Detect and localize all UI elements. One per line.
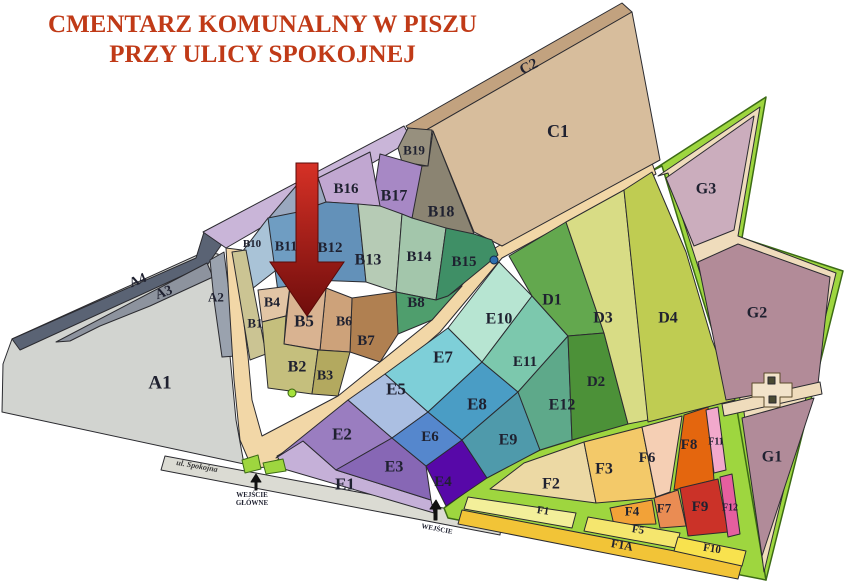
label-f7: F7: [657, 501, 672, 516]
label-main-entrance-label-1: WEJŚCIE: [236, 491, 268, 499]
label-b6: B6: [336, 315, 352, 330]
label-b7: B7: [357, 333, 375, 349]
section-a1: [2, 252, 244, 464]
label-e4: E4: [434, 474, 452, 490]
label-b14: B14: [406, 249, 432, 265]
label-b4: B4: [264, 296, 280, 311]
label-e1: E1: [335, 475, 355, 494]
label-f6: F6: [639, 450, 656, 466]
label-b18: B18: [428, 204, 455, 221]
marker-dot-blue: [490, 256, 498, 264]
label-d3: D3: [593, 310, 613, 327]
label-e8: E8: [467, 395, 487, 414]
label-b10: B10: [243, 238, 262, 250]
entrance-block-1: [242, 455, 261, 473]
label-b16: B16: [333, 181, 359, 197]
label-a1: A1: [148, 373, 171, 394]
label-e2: E2: [332, 425, 352, 444]
label-b8: B8: [407, 295, 425, 311]
label-e10: E10: [486, 311, 513, 328]
label-e12: E12: [549, 397, 576, 414]
section-b7: [350, 292, 398, 362]
label-f4: F4: [625, 504, 640, 519]
chapel-door-1: [768, 377, 775, 384]
label-b11: B11: [275, 240, 298, 255]
label-e11: E11: [513, 354, 537, 370]
label-main-entrance-label-2: GŁÓWNE: [236, 499, 269, 507]
cemetery-map: A4A3A2A1C2C1B19B16B17B18B9B10B11B12B13B1…: [0, 0, 852, 584]
cemetery-map-page: CMENTARZ KOMUNALNY W PISZU PRZY ULICY SP…: [0, 0, 852, 584]
label-d2: D2: [587, 374, 605, 390]
label-b19: B19: [403, 143, 425, 158]
label-e5: E5: [386, 380, 406, 399]
label-b2: B2: [288, 359, 307, 376]
label-f11: F11: [708, 437, 724, 448]
label-b5: B5: [294, 312, 314, 331]
label-e3: E3: [385, 459, 404, 476]
label-b17: B17: [381, 188, 408, 205]
label-g2: G2: [747, 305, 767, 322]
label-f12: F12: [722, 503, 738, 514]
label-f9: F9: [692, 499, 709, 515]
label-e9: E9: [499, 432, 518, 449]
label-a2: A2: [208, 290, 224, 305]
label-b3: B3: [317, 369, 333, 384]
label-d1: D1: [542, 292, 562, 309]
label-b1: B1: [247, 316, 262, 331]
label-b12: B12: [317, 240, 342, 256]
label-g1: G1: [762, 449, 782, 466]
label-g3: G3: [696, 181, 716, 198]
label-f5: F5: [631, 523, 645, 537]
chapel-door-2: [769, 396, 776, 403]
label-e7: E7: [433, 348, 453, 367]
label-e6: E6: [421, 429, 439, 445]
label-f3: F3: [595, 461, 613, 478]
label-b13: B13: [355, 252, 382, 269]
label-c1: C1: [547, 121, 569, 141]
marker-dot-green: [288, 389, 296, 397]
label-d4: D4: [658, 310, 678, 327]
label-f2: F2: [542, 476, 560, 493]
label-b15: B15: [451, 254, 476, 270]
label-f8: F8: [681, 437, 698, 453]
label-f1: F1: [536, 504, 550, 518]
